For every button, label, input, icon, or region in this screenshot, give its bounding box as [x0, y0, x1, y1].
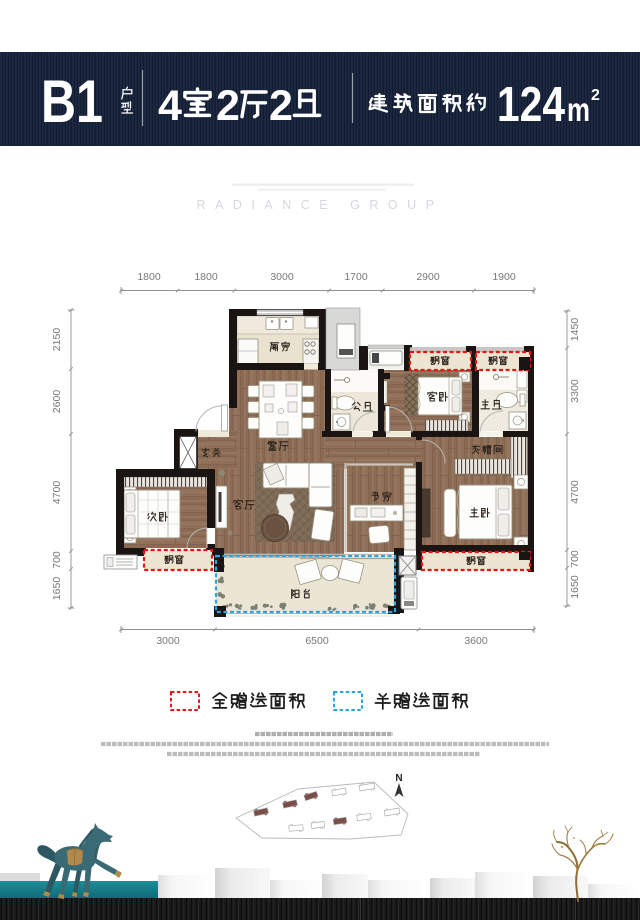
svg-text:2: 2 [591, 87, 600, 104]
svg-text:1900: 1900 [492, 271, 516, 283]
svg-text:4: 4 [158, 82, 182, 130]
svg-text:m: m [567, 91, 590, 128]
svg-text:3000: 3000 [270, 271, 294, 283]
svg-text:4700: 4700 [569, 480, 581, 504]
svg-text:2: 2 [216, 82, 240, 130]
svg-text:3300: 3300 [569, 379, 581, 403]
svg-text:RADIANCE GROUP: RADIANCE GROUP [197, 198, 444, 212]
svg-text:1650: 1650 [51, 577, 63, 601]
svg-text:2600: 2600 [51, 390, 63, 414]
svg-text:B1: B1 [41, 68, 103, 135]
svg-text:1800: 1800 [194, 271, 218, 283]
svg-text:4700: 4700 [51, 481, 63, 505]
svg-text:3000: 3000 [156, 635, 180, 647]
svg-text:2900: 2900 [416, 271, 440, 283]
svg-text:2150: 2150 [51, 328, 63, 352]
svg-text:1450: 1450 [569, 318, 581, 342]
svg-text:N: N [395, 773, 402, 784]
svg-text:124: 124 [497, 78, 565, 132]
svg-text:3600: 3600 [464, 635, 488, 647]
svg-text:2: 2 [269, 82, 293, 130]
svg-text:6500: 6500 [305, 635, 329, 647]
svg-text:1800: 1800 [137, 271, 161, 283]
svg-text:1650: 1650 [569, 575, 581, 599]
svg-text:700: 700 [51, 551, 63, 569]
svg-text:1700: 1700 [344, 271, 368, 283]
svg-text:700: 700 [569, 550, 581, 568]
